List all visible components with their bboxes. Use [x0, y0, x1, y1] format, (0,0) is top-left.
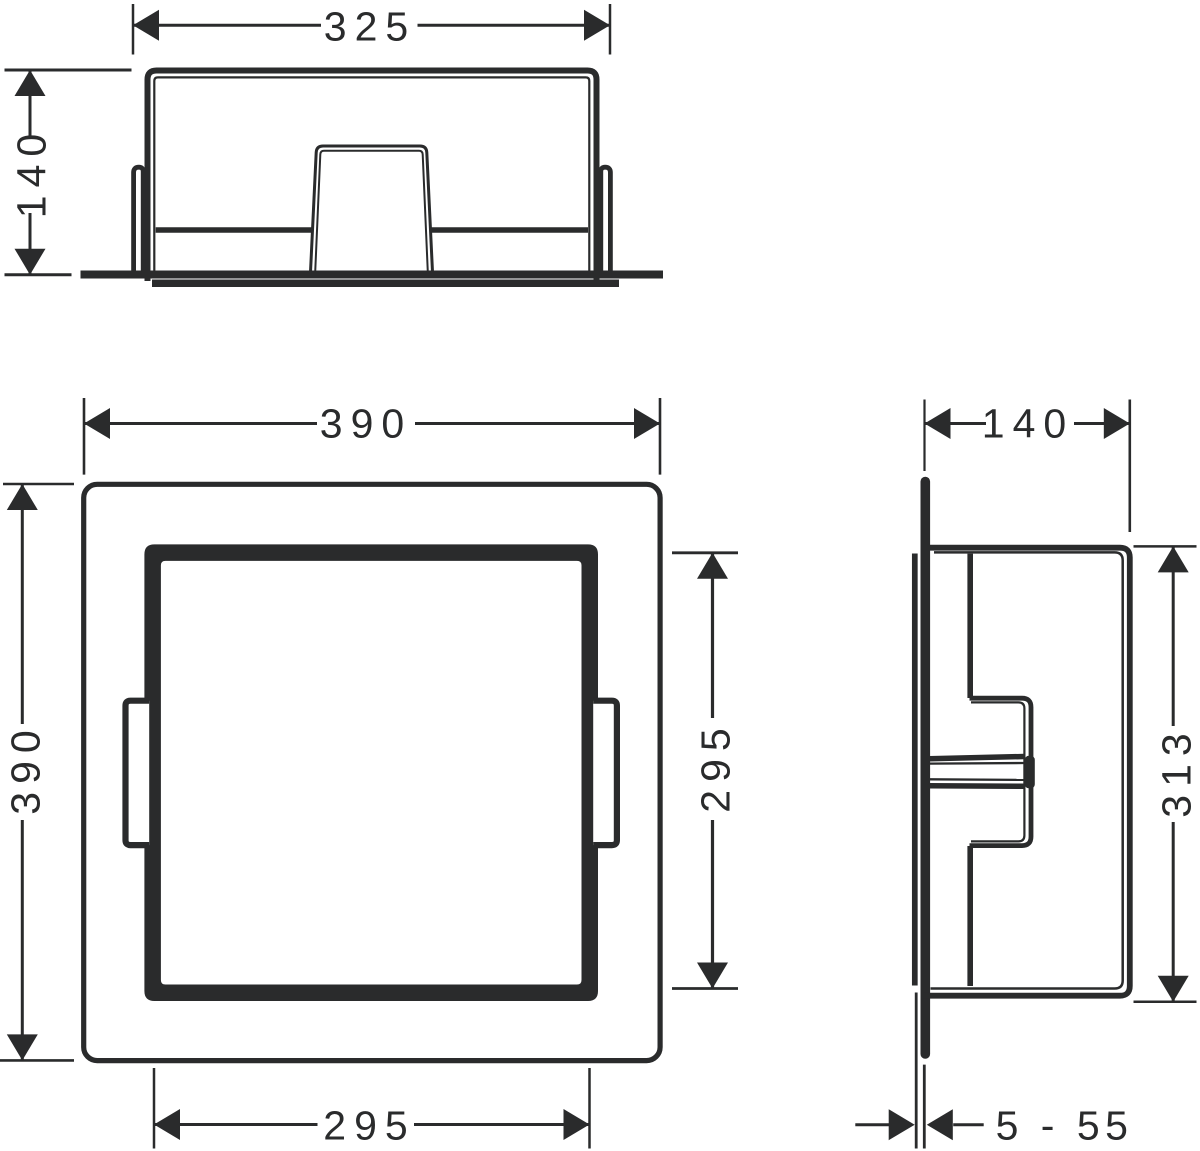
svg-text:140: 140 — [9, 126, 55, 218]
svg-text:390: 390 — [3, 722, 49, 814]
svg-text:390: 390 — [320, 401, 412, 447]
svg-text:295: 295 — [693, 720, 739, 812]
svg-text:140: 140 — [982, 401, 1074, 447]
svg-text:313: 313 — [1154, 725, 1200, 817]
svg-text:325: 325 — [324, 3, 416, 49]
svg-text:295: 295 — [323, 1103, 415, 1149]
svg-text:5 - 55: 5 - 55 — [996, 1103, 1134, 1149]
